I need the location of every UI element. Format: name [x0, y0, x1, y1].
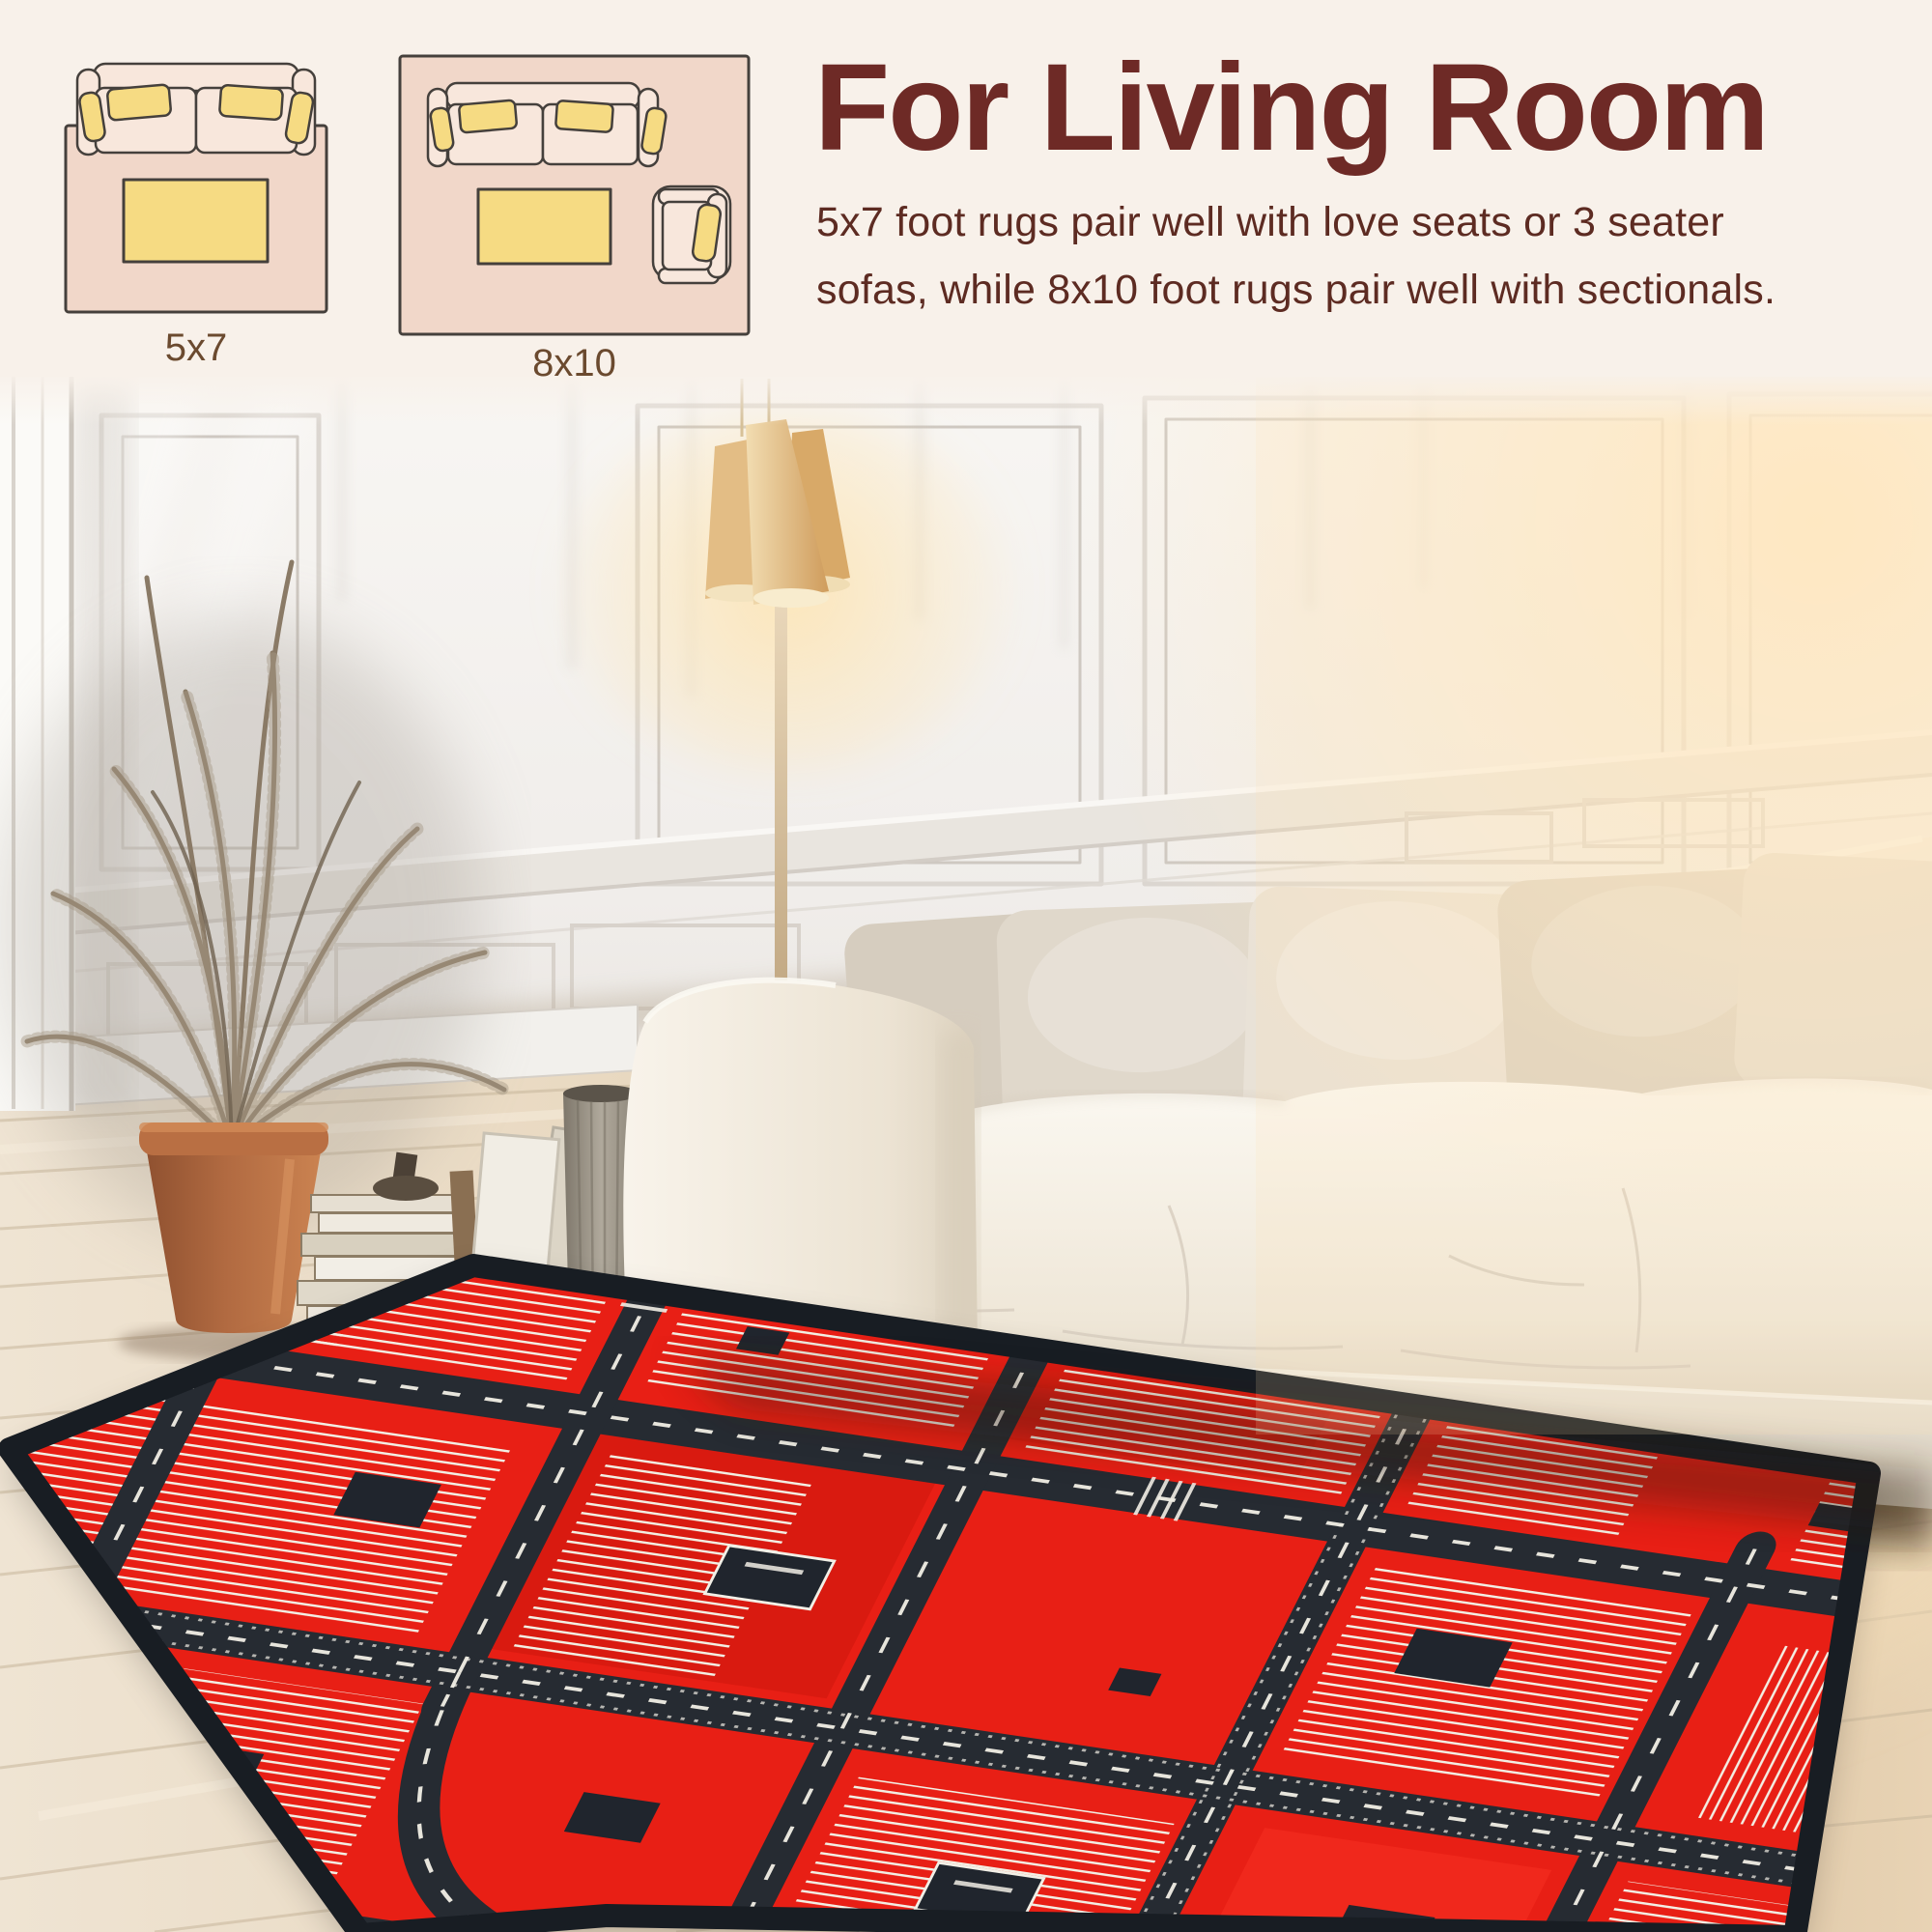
- coffee-table-icon: [124, 180, 268, 262]
- description-line-2: sofas, while 8x10 foot rugs pair well wi…: [816, 267, 1776, 314]
- header-photo-blend: [0, 370, 1932, 426]
- sofa-top-view-icon: [77, 64, 315, 155]
- armchair-icon: [653, 186, 730, 283]
- size-diagram-5x7: [66, 64, 327, 312]
- page-title: For Living Room: [814, 37, 1768, 179]
- sofa-top-view-icon: [428, 83, 667, 166]
- diagram-label-5x7: 5x7: [66, 327, 327, 370]
- sunlight-glow: [0, 372, 1932, 1932]
- description-line-1: 5x7 foot rugs pair well with love seats …: [816, 199, 1724, 246]
- diagram-label-8x10: 8x10: [400, 342, 749, 385]
- size-diagram-8x10: [400, 56, 749, 334]
- coffee-table-icon: [478, 189, 611, 264]
